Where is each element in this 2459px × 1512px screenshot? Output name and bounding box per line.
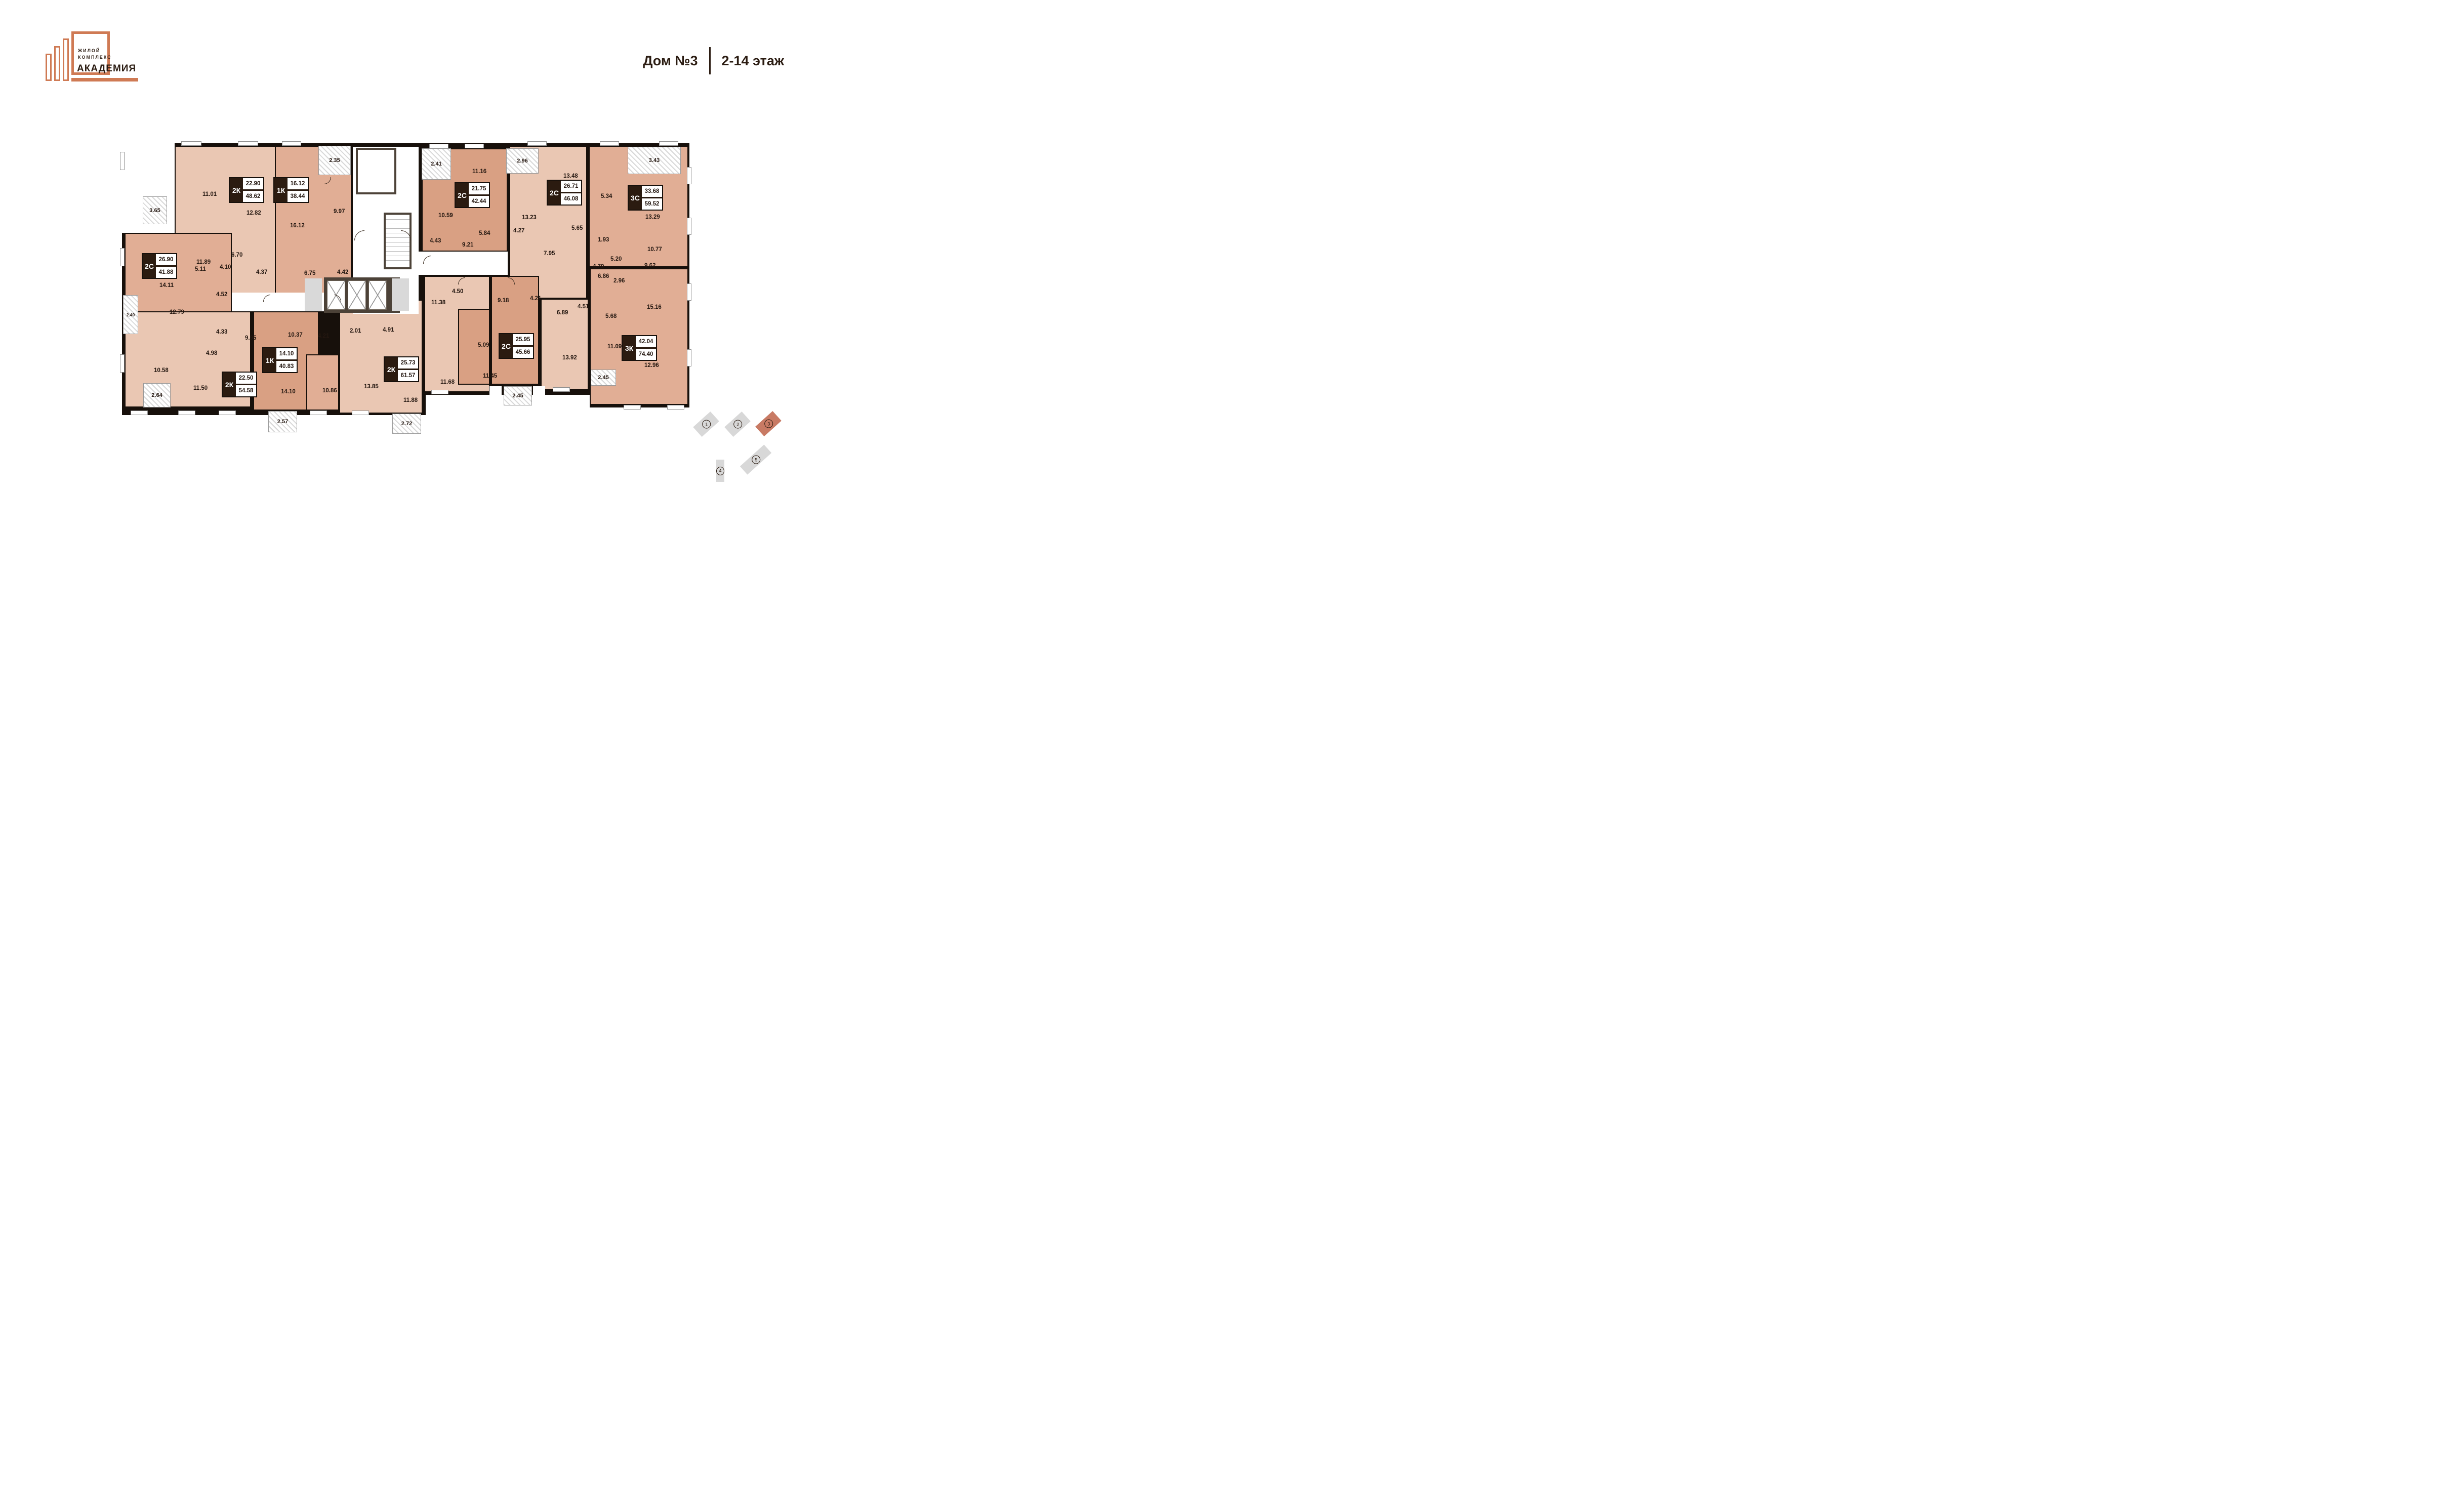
window: [600, 141, 619, 146]
logo-subtitle-1: ЖИЛОЙ: [78, 48, 100, 54]
logo-baseline: [71, 78, 138, 81]
window: [687, 349, 691, 366]
living-area-value: 21.75: [469, 183, 489, 195]
balcony: 2.57: [268, 411, 297, 432]
living-area-value: 22.50: [236, 373, 256, 384]
apartment-type: 1К: [263, 348, 276, 372]
balcony-area-label: 3.43: [628, 157, 680, 164]
living-area-value: 25.73: [398, 357, 418, 369]
balcony: 2.72: [392, 414, 421, 434]
window: [527, 141, 547, 146]
balcony-area-label: 2.49: [124, 312, 138, 317]
balcony-area-label: 2.96: [507, 158, 538, 164]
window: [553, 387, 570, 392]
apartment-areas: 16.1238.44: [288, 178, 308, 202]
apartment-type: 3С: [629, 186, 642, 210]
apartment-badge[interactable]: 1К16.1238.44: [273, 177, 309, 203]
page-header: Дом №3 2-14 этаж: [643, 47, 784, 75]
balcony: 2.35: [318, 146, 351, 175]
total-area-value: 61.57: [398, 369, 418, 381]
elevator-shaft: [368, 280, 387, 310]
balcony: 2.45: [504, 386, 532, 405]
window: [219, 411, 236, 415]
house-title: Дом №3: [643, 53, 698, 69]
balcony-area-label: 2.41: [422, 161, 450, 167]
apartment-type: 2С: [143, 254, 156, 278]
living-area-value: 14.10: [276, 348, 297, 360]
total-area-value: 74.40: [636, 348, 656, 360]
apartment-badge[interactable]: 2С25.9545.66: [499, 333, 534, 359]
corridor: [419, 252, 508, 275]
minimap-building-number: 3: [764, 420, 773, 428]
floors-label: 2-14 этаж: [722, 53, 784, 69]
balcony: 3.43: [628, 147, 681, 174]
window: [310, 411, 327, 415]
living-area-value: 16.12: [288, 178, 308, 190]
apartment-badge[interactable]: 2С26.9041.88: [142, 253, 177, 279]
window: [282, 141, 301, 146]
stroller-room: [392, 278, 409, 311]
minimap-building-2[interactable]: 2: [724, 412, 751, 437]
living-area-value: 25.95: [513, 334, 533, 346]
balcony: 2.41: [422, 148, 451, 180]
balcony-area-label: 2.45: [504, 393, 531, 399]
elevator-shaft: [348, 280, 366, 310]
minimap-building-number: 2: [733, 420, 742, 429]
total-area-value: 59.52: [642, 197, 662, 210]
minimap-building-3[interactable]: 3: [755, 411, 782, 436]
staircase: [384, 213, 412, 269]
balcony-area-label: 2.64: [144, 392, 170, 398]
balcony: 3.65: [143, 196, 167, 224]
corridor: [489, 386, 502, 403]
living-area-value: 26.90: [156, 254, 176, 266]
balcony-area-label: 2.57: [269, 419, 297, 425]
apartment-type: 2С: [500, 334, 513, 358]
minimap-building-number: 1: [702, 420, 711, 429]
apartment-type: 2К: [223, 373, 236, 396]
total-area-value: 42.44: [469, 195, 489, 207]
window: [667, 405, 684, 410]
window: [238, 141, 258, 146]
balcony: 2.64: [143, 383, 171, 407]
apartment-area: [306, 354, 339, 411]
window: [352, 411, 369, 415]
window: [120, 152, 125, 170]
total-area-value: 40.83: [276, 360, 297, 372]
balcony-area-label: 2.35: [319, 157, 350, 164]
logo: ЖИЛОЙ КОМПЛЕКС АКАДЕМИЯ: [46, 31, 147, 82]
title-divider: [709, 47, 711, 74]
logo-title: АКАДЕМИЯ: [77, 63, 136, 74]
total-area-value: 41.88: [156, 266, 176, 278]
logo-subtitle-2: КОМПЛЕКС: [78, 55, 112, 60]
window: [659, 141, 678, 146]
corridor: [533, 386, 545, 403]
apartment-badge[interactable]: 2К25.7361.57: [384, 356, 419, 382]
apartment-areas: 22.9048.62: [243, 178, 263, 202]
apartment-type: 2К: [230, 178, 243, 202]
living-area-value: 33.68: [642, 186, 662, 197]
minimap-building-number: 5: [752, 456, 760, 464]
apartment-areas: 33.6859.52: [642, 186, 662, 210]
apartment-badge[interactable]: 3С33.6859.52: [628, 185, 663, 211]
floorplan-page: ЖИЛОЙ КОМПЛЕКС АКАДЕМИЯ Дом №3 2-14 этаж…: [0, 0, 819, 504]
total-area-value: 45.66: [513, 346, 533, 358]
window: [120, 248, 125, 266]
apartment-type: 2С: [456, 183, 469, 207]
apartment-badge[interactable]: 2К22.5054.58: [222, 372, 257, 397]
apartment-areas: 14.1040.83: [276, 348, 297, 372]
window: [687, 218, 691, 235]
window: [178, 411, 195, 415]
apartment-badge[interactable]: 1К14.1040.83: [262, 347, 298, 373]
window: [624, 405, 641, 410]
apartment-type: 3К: [623, 336, 636, 360]
entrance-lobby: [356, 148, 396, 194]
total-area-value: 46.08: [561, 192, 581, 205]
apartment-badge[interactable]: 2С26.7146.08: [547, 180, 582, 206]
window: [687, 283, 691, 301]
total-area-value: 48.62: [243, 190, 263, 202]
minimap-building-5[interactable]: 5: [740, 444, 771, 474]
apartment-type: 1К: [274, 178, 288, 202]
window: [687, 167, 691, 184]
apartment-badge[interactable]: 2С21.7542.44: [455, 182, 490, 208]
window: [465, 144, 484, 148]
minimap-building-1[interactable]: 1: [693, 412, 719, 437]
apartment-areas: 26.9041.88: [156, 254, 176, 278]
window: [120, 354, 125, 373]
window: [429, 144, 448, 148]
logo-bar-icon: [63, 38, 69, 81]
total-area-value: 54.58: [236, 384, 256, 396]
living-area-value: 26.71: [561, 181, 581, 192]
minimap-building-number: 4: [716, 467, 724, 475]
apartment-areas: 25.7361.57: [398, 357, 418, 381]
apartment-areas: 42.0474.40: [636, 336, 656, 360]
balcony: 2.45: [591, 370, 616, 386]
apartment-areas: 25.9545.66: [513, 334, 533, 358]
balcony-area-label: 3.65: [143, 208, 167, 214]
living-area-value: 22.90: [243, 178, 263, 190]
apartment-type: 2К: [385, 357, 398, 381]
stroller-room: [305, 278, 322, 311]
minimap-building-4[interactable]: 4: [716, 460, 724, 482]
balcony: 2.96: [506, 148, 539, 174]
apartment-areas: 21.7542.44: [469, 183, 489, 207]
balcony-area-label: 2.72: [393, 421, 421, 427]
apartment-type: 2С: [548, 181, 561, 205]
window: [181, 141, 201, 146]
logo-bar-icon: [54, 46, 60, 81]
apartment-areas: 22.5054.58: [236, 373, 256, 396]
living-area-value: 42.04: [636, 336, 656, 348]
window: [431, 390, 448, 394]
apartment-area: [491, 276, 539, 385]
apartment-area: [125, 233, 232, 319]
apartment-areas: 26.7146.08: [561, 181, 581, 205]
balcony-area-label: 2.45: [591, 375, 616, 381]
total-area-value: 38.44: [288, 190, 308, 202]
window: [131, 411, 148, 415]
apartment-badge[interactable]: 3К42.0474.40: [622, 335, 657, 361]
apartment-badge[interactable]: 2К22.9048.62: [229, 177, 264, 203]
balcony: 2.49: [123, 295, 138, 334]
logo-bar-icon: [46, 54, 52, 81]
